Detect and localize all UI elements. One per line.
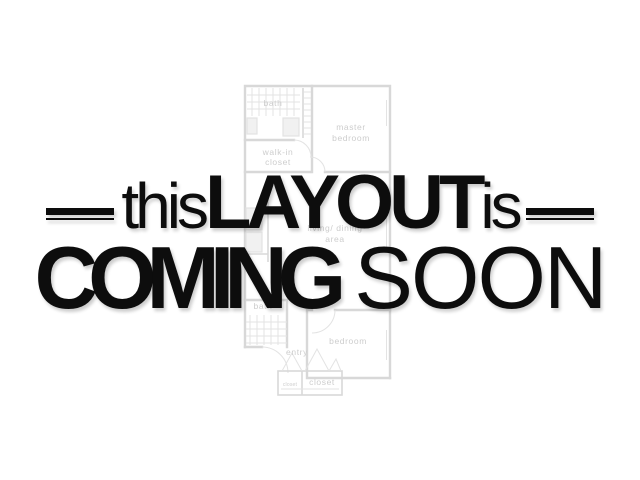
- coming-soon-placeholder: bath master bedroom walk-in closet livin…: [0, 0, 640, 480]
- headline-line-2: COMING SOON: [0, 227, 640, 329]
- room-label-walkin-1: walk-in: [262, 147, 294, 157]
- rule-thin-bar: [46, 218, 114, 221]
- rule-thick-bar: [46, 208, 114, 215]
- rule-thin-bar: [526, 218, 594, 221]
- room-label-entry: entry: [286, 347, 308, 357]
- headline: this LAYOUT is COMING SOON: [0, 159, 640, 329]
- left-rule-decoration: [46, 208, 114, 221]
- room-label-closet-small: closet: [283, 382, 298, 388]
- right-rule-decoration: [526, 208, 594, 221]
- headline-word-coming: COMING: [35, 227, 337, 329]
- room-label-master-1: master: [336, 122, 366, 132]
- rule-thick-bar: [526, 208, 594, 215]
- room-label-master-2: bedroom: [332, 133, 370, 143]
- room-label-bedroom: bedroom: [329, 336, 367, 346]
- room-label-bath-upper: bath: [264, 98, 283, 108]
- room-label-closet-large: closet: [309, 377, 335, 387]
- headline-word-soon: SOON: [354, 227, 605, 329]
